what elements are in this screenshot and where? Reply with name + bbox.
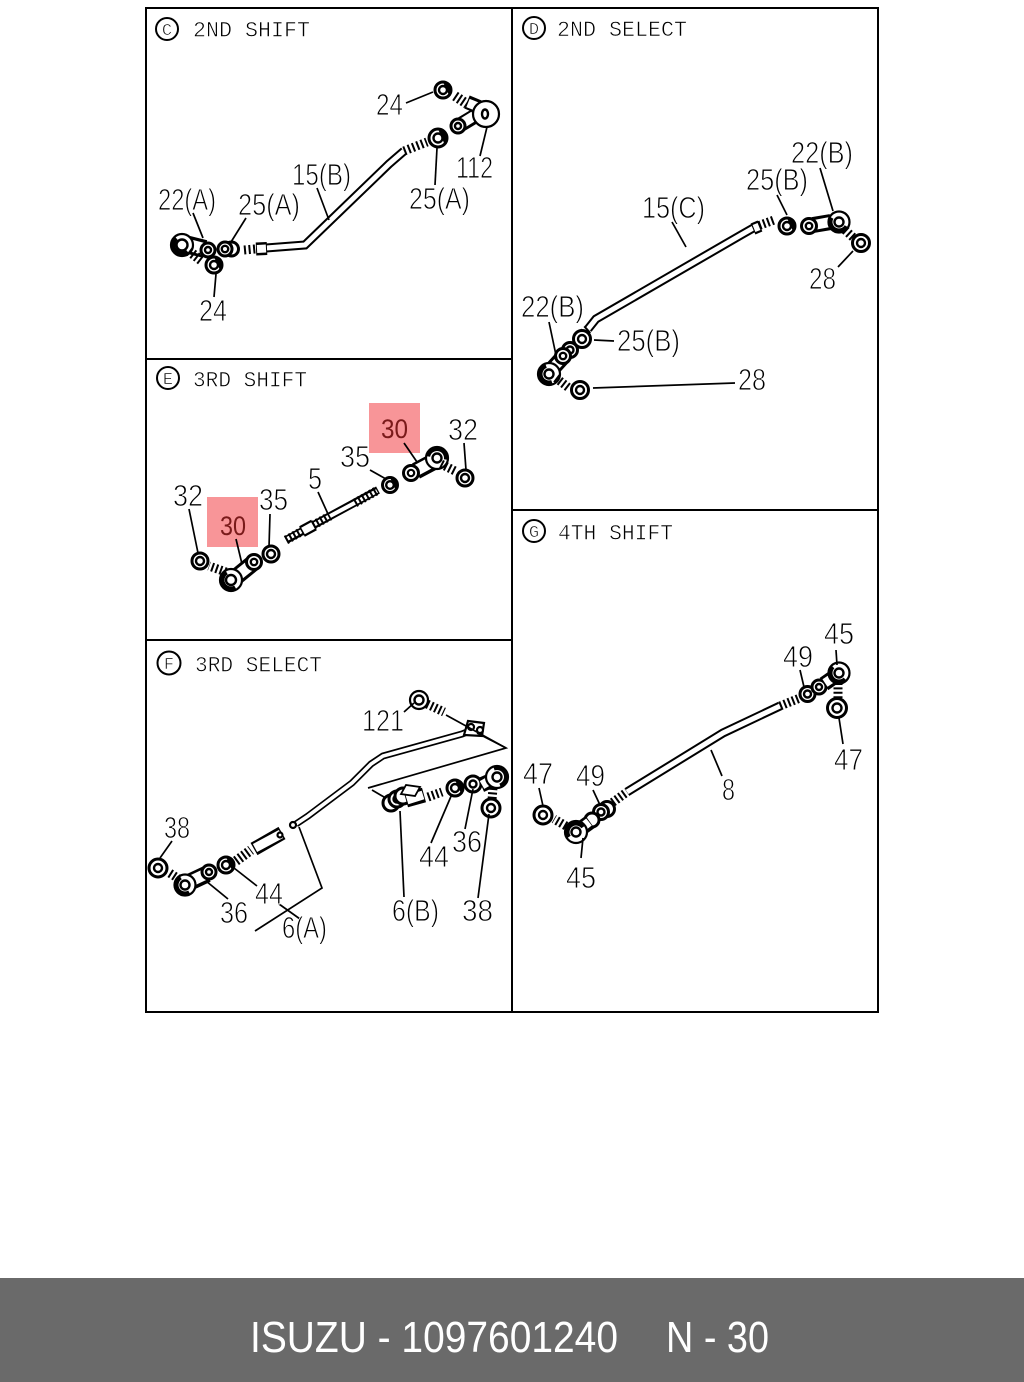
svg-text:35: 35 (340, 439, 370, 474)
svg-text:22(A): 22(A) (158, 182, 216, 217)
svg-text:49: 49 (576, 758, 605, 793)
svg-text:25(B): 25(B) (617, 323, 680, 358)
svg-text:45: 45 (566, 860, 596, 895)
svg-text:8: 8 (722, 772, 735, 807)
svg-text:22(B): 22(B) (521, 289, 584, 324)
svg-text:44: 44 (419, 839, 449, 874)
svg-text:F: F (164, 656, 174, 675)
svg-text:3RD SHIFT: 3RD SHIFT (193, 369, 307, 394)
svg-text:4TH SHIFT: 4TH SHIFT (558, 522, 673, 547)
svg-text:2ND SELECT: 2ND SELECT (557, 18, 687, 43)
svg-text:32: 32 (448, 412, 478, 447)
svg-text:28: 28 (809, 261, 836, 296)
svg-text:3RD SELECT: 3RD SELECT (195, 654, 322, 679)
svg-text:5: 5 (308, 461, 322, 496)
svg-text:D: D (529, 21, 539, 40)
svg-text:47: 47 (834, 742, 863, 777)
svg-text:36: 36 (452, 824, 482, 859)
svg-text:30: 30 (220, 511, 246, 541)
svg-text:15(C): 15(C) (642, 190, 705, 225)
svg-text:44: 44 (255, 876, 283, 911)
svg-text:25(A): 25(A) (238, 187, 300, 222)
svg-text:112: 112 (456, 150, 493, 185)
svg-text:N - 30: N - 30 (666, 1313, 769, 1362)
svg-text:30: 30 (381, 414, 408, 444)
svg-text:24: 24 (376, 87, 403, 122)
svg-text:35: 35 (259, 482, 288, 517)
svg-text:28: 28 (738, 362, 766, 397)
svg-text:121: 121 (362, 703, 404, 738)
svg-text:36: 36 (220, 895, 248, 930)
svg-text:38: 38 (164, 810, 190, 845)
svg-text:15(B): 15(B) (292, 157, 351, 192)
svg-text:25(B): 25(B) (746, 162, 808, 197)
svg-text:24: 24 (199, 293, 227, 328)
svg-text:49: 49 (783, 639, 813, 674)
svg-text:C: C (162, 22, 172, 41)
svg-text:6(A): 6(A) (282, 910, 327, 945)
svg-text:E: E (163, 371, 173, 390)
svg-text:38: 38 (462, 893, 493, 928)
svg-text:45: 45 (824, 616, 854, 651)
svg-text:ISUZU - 1097601240: ISUZU - 1097601240 (250, 1313, 618, 1362)
svg-text:2ND SHIFT: 2ND SHIFT (193, 19, 310, 44)
svg-text:25(A): 25(A) (409, 181, 470, 216)
svg-text:6(B): 6(B) (392, 893, 439, 928)
svg-text:32: 32 (173, 478, 203, 513)
svg-text:G: G (529, 524, 539, 543)
svg-text:47: 47 (523, 756, 553, 791)
